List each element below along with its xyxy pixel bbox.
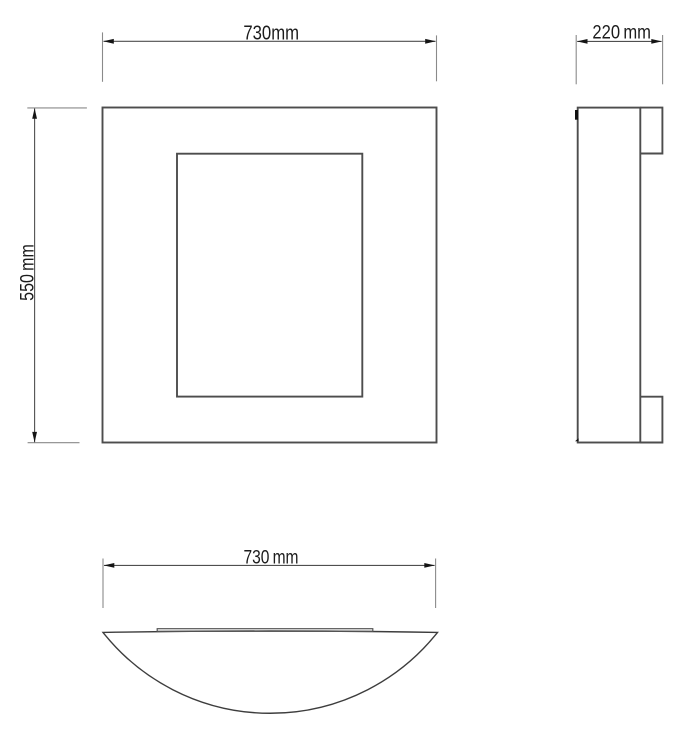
svg-text:220 mm: 220 mm bbox=[592, 23, 651, 44]
svg-text:550 mm: 550 mm bbox=[17, 244, 38, 301]
svg-text:730 mm: 730 mm bbox=[244, 547, 299, 568]
svg-text:730mm: 730mm bbox=[243, 23, 299, 45]
